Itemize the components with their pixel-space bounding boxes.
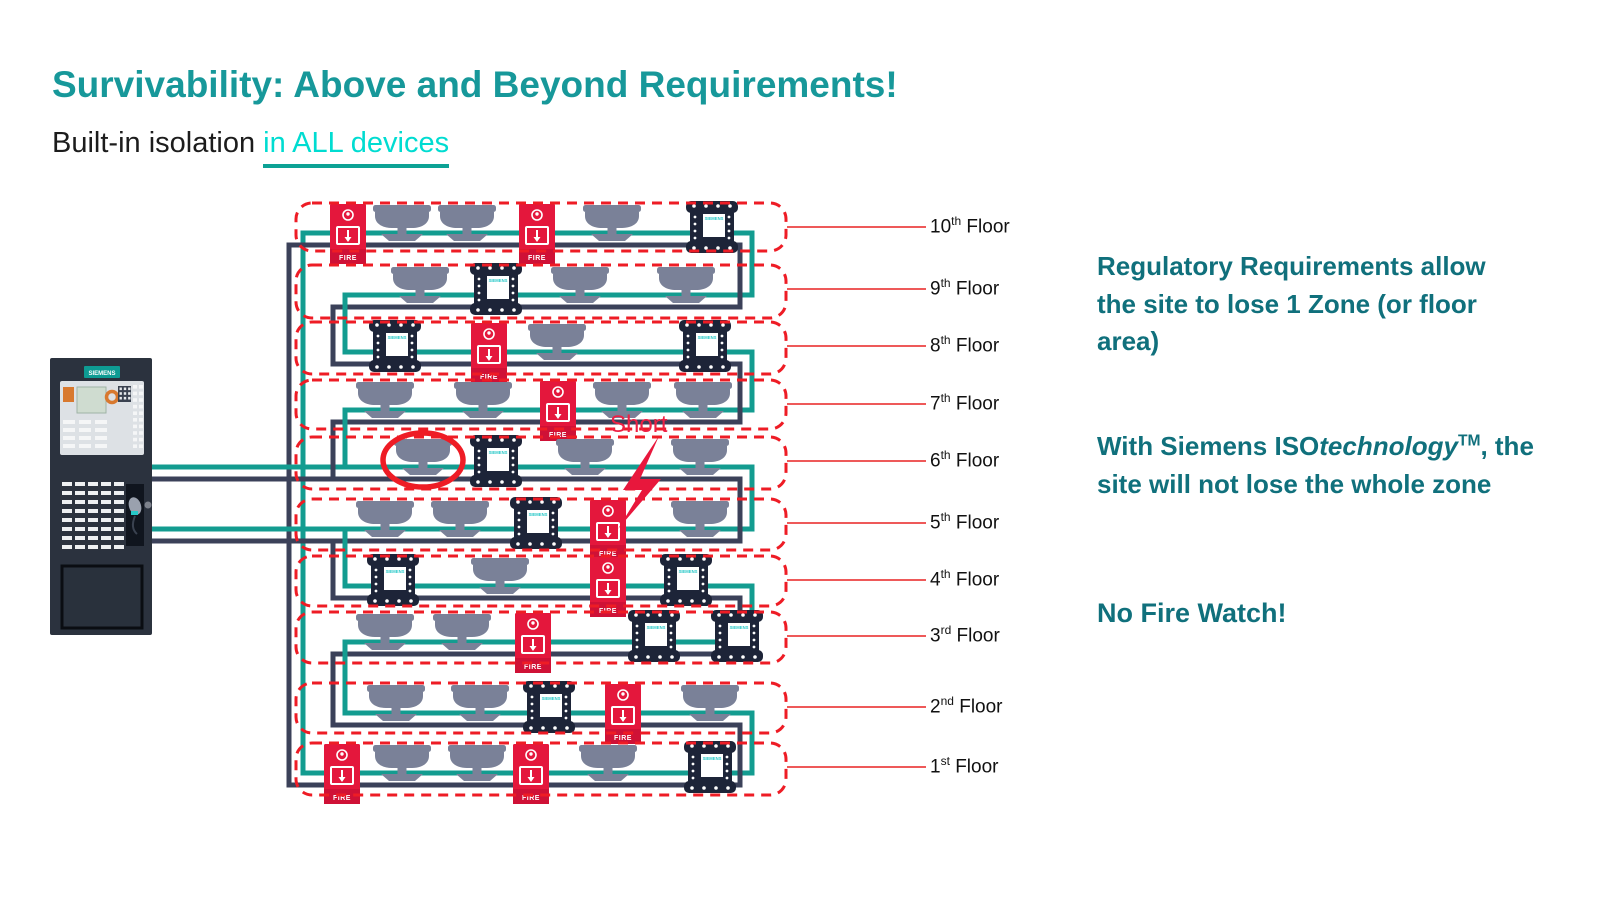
floor-label-4th: 4th Floor [930, 567, 999, 591]
pull-station-label: FIRE [524, 664, 542, 671]
floor-label-7th: 7th Floor [930, 391, 999, 415]
smoke-detector [356, 382, 414, 418]
smoke-detector [579, 745, 637, 781]
manual-pull-station: FIRE [605, 684, 641, 744]
smoke-detector [448, 745, 506, 781]
smoke-detector [551, 267, 609, 303]
note-isotechnology: With Siemens ISOtechnologyTM, the site w… [1097, 428, 1552, 503]
module-brand-text: SIEMENS [489, 450, 508, 455]
isolator-module: SIEMENS [628, 610, 680, 662]
note-iso-italic: technology [1319, 431, 1458, 461]
module-brand-text: SIEMENS [730, 625, 749, 630]
isolator-module: SIEMENS [470, 263, 522, 315]
panel-display [77, 387, 106, 413]
module-brand-text: SIEMENS [698, 335, 717, 340]
floor-label-8th: 8th Floor [930, 333, 999, 357]
panel-brand-text: SIEMENS [88, 371, 115, 377]
smoke-detector [356, 614, 414, 650]
pull-station-label: FIRE [528, 255, 546, 262]
smoke-detector [471, 558, 529, 594]
floor-label-5th: 5th Floor [930, 510, 999, 534]
isolator-module: SIEMENS [367, 554, 419, 606]
floor-label-6th: 6th Floor [930, 448, 999, 472]
note-iso-tm: TM [1458, 432, 1481, 449]
smoke-detector [431, 501, 489, 537]
isolator-module: SIEMENS [660, 554, 712, 606]
floor-label-2nd: 2nd Floor [930, 694, 1003, 718]
module-brand-text: SIEMENS [529, 512, 548, 517]
smoke-detector [373, 745, 431, 781]
isolator-module: SIEMENS [679, 320, 731, 372]
fire-alarm-control-panel: SIEMENS [50, 358, 152, 635]
smoke-detector [433, 614, 491, 650]
module-brand-text: SIEMENS [705, 216, 724, 221]
short-fault-label: Short [610, 411, 667, 439]
manual-pull-station: FIRE [540, 381, 576, 441]
smoke-detector [356, 501, 414, 537]
smoke-detector [681, 685, 739, 721]
floor-label-9th: 9th Floor [930, 276, 999, 300]
smoke-detector [671, 439, 729, 475]
isolator-module: SIEMENS [470, 435, 522, 487]
module-brand-text: SIEMENS [647, 625, 666, 630]
isolator-module: SIEMENS [686, 201, 738, 253]
note-iso-pre: With Siemens ISO [1097, 431, 1319, 461]
slide: Survivability: Above and Beyond Requirem… [0, 0, 1600, 900]
smoke-detector [671, 501, 729, 537]
isolator-module: SIEMENS [711, 610, 763, 662]
module-brand-text: SIEMENS [386, 569, 405, 574]
smoke-detector [394, 439, 452, 475]
module-brand-text: SIEMENS [542, 696, 561, 701]
smoke-detector [391, 267, 449, 303]
isolator-module: SIEMENS [510, 497, 562, 549]
note-no-fire-watch: No Fire Watch! [1097, 598, 1287, 629]
panel-door-knob [145, 502, 152, 509]
pull-station-label: FIRE [339, 255, 357, 262]
smoke-detector [454, 382, 512, 418]
smoke-detector [657, 267, 715, 303]
isolator-module: SIEMENS [523, 681, 575, 733]
smoke-detector [556, 439, 614, 475]
smoke-detector [451, 685, 509, 721]
module-brand-text: SIEMENS [703, 756, 722, 761]
floor-label-1st: 1st Floor [930, 754, 999, 778]
panel-lower-door [62, 566, 142, 628]
pull-station-label: FIRE [614, 735, 632, 742]
note-regulatory: Regulatory Requirements allow the site t… [1097, 248, 1497, 361]
module-brand-text: SIEMENS [489, 278, 508, 283]
smoke-detector [438, 205, 496, 241]
smoke-detector [674, 382, 732, 418]
floor-label-10th: 10th Floor [930, 214, 1010, 238]
manual-pull-station: FIRE [590, 557, 626, 617]
floor-label-3rd: 3rd Floor [930, 623, 1000, 647]
module-brand-text: SIEMENS [679, 569, 698, 574]
smoke-detector [528, 324, 586, 360]
isolator-module: SIEMENS [369, 320, 421, 372]
manual-pull-station: FIRE [330, 204, 366, 264]
manual-pull-station: FIRE [519, 204, 555, 264]
smoke-detector [373, 205, 431, 241]
module-brand-text: SIEMENS [388, 335, 407, 340]
smoke-detector [367, 685, 425, 721]
isolator-module: SIEMENS [684, 741, 736, 793]
smoke-detector [583, 205, 641, 241]
